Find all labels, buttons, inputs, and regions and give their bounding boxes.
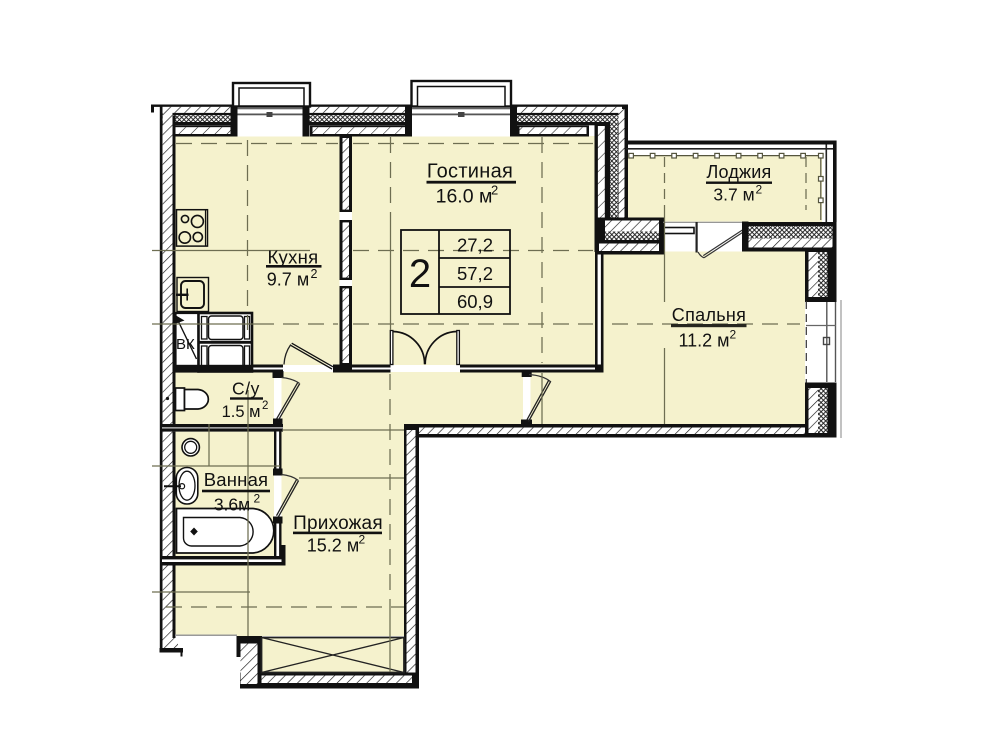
svg-text:Спальня: Спальня	[672, 305, 746, 325]
svg-text:9.7 м: 9.7 м	[267, 270, 309, 290]
svg-text:2: 2	[491, 183, 498, 198]
svg-text:1.5 м: 1.5 м	[222, 403, 261, 421]
svg-text:60,9: 60,9	[457, 291, 493, 312]
svg-text:Прихожая: Прихожая	[293, 513, 383, 534]
svg-text:Ванная: Ванная	[204, 469, 269, 490]
svg-text:ВК: ВК	[176, 336, 195, 353]
svg-text:15.2 м: 15.2 м	[307, 536, 359, 556]
svg-text:Гостиная: Гостиная	[427, 161, 513, 183]
svg-text:27,2: 27,2	[457, 235, 493, 256]
svg-text:3.7 м: 3.7 м	[713, 185, 754, 205]
svg-text:2: 2	[254, 492, 261, 506]
svg-text:2: 2	[311, 267, 318, 281]
svg-text:2: 2	[756, 183, 763, 197]
svg-text:2: 2	[359, 533, 366, 547]
svg-text:2: 2	[730, 328, 737, 342]
svg-text:2: 2	[262, 400, 268, 412]
svg-text:Кухня: Кухня	[267, 247, 318, 268]
svg-text:С/у: С/у	[232, 379, 260, 399]
svg-text:16.0 м: 16.0 м	[436, 186, 493, 208]
svg-text:11.2 м: 11.2 м	[678, 331, 729, 351]
svg-text:3.6м: 3.6м	[214, 495, 250, 515]
svg-text:Лоджия: Лоджия	[707, 162, 772, 182]
svg-text:2: 2	[409, 252, 431, 296]
svg-text:57,2: 57,2	[457, 263, 493, 284]
